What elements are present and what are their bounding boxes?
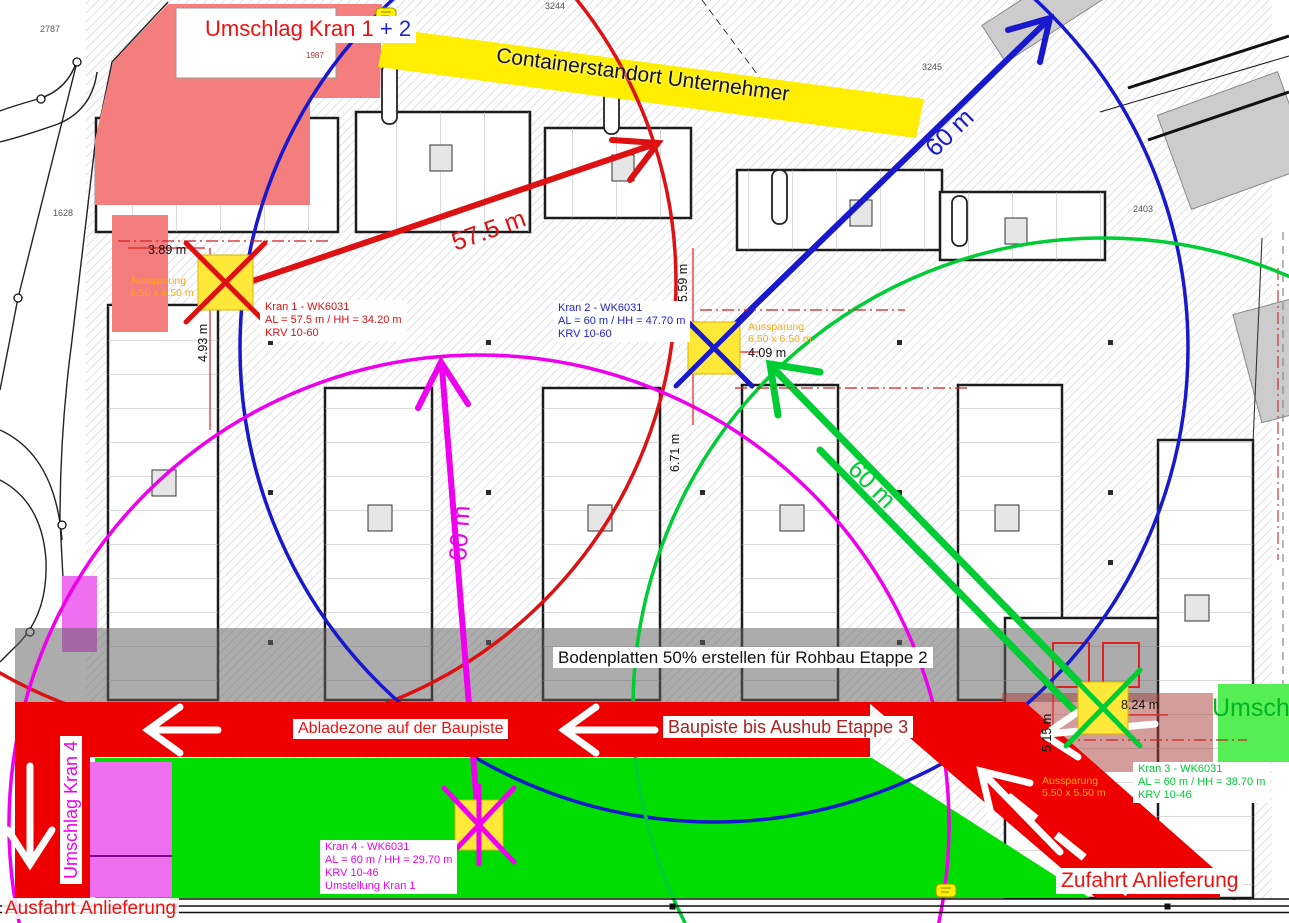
aussparung-1-title: Aussparung <box>130 276 194 288</box>
kran-2-krv: KRV 10-60 <box>558 328 685 341</box>
kran-4-note: Umstellung Kran 1 <box>325 880 452 893</box>
street-lines-bottom <box>0 899 1289 913</box>
kran-4-annotation: Kran 4 - WK6031 AL = 60 m / HH = 29.70 m… <box>320 840 457 894</box>
kran-4-krv: KRV 10-46 <box>325 867 452 880</box>
parcel-2787: 2787 <box>40 24 60 34</box>
aussparung-2-note: Aussparung 6.50 x 6.50 m <box>748 322 812 346</box>
dim-kran2-y1: 5.59 m <box>676 264 690 302</box>
parcel-1628: 1628 <box>53 208 73 218</box>
kran-1-krv: KRV 10-60 <box>265 327 402 340</box>
umschlag-kran-4-label: Umschlag Kran 4 <box>60 736 82 884</box>
parcel-3244: 3244 <box>545 1 565 11</box>
kran-2-specs: AL = 60 m / HH = 47.70 m <box>558 315 685 328</box>
ausfahrt-anlieferung-label: Ausfahrt Anlieferung <box>2 898 179 919</box>
zufahrt-anlieferung-label: Zufahrt Anlieferung <box>1056 868 1243 894</box>
umschlag-kran-1-2-label: Umschlag Kran 1 + 2 <box>200 16 416 43</box>
kran-1-name: Kran 1 - WK6031 <box>265 301 402 314</box>
zone-umschlag-strip-left <box>112 215 168 332</box>
kran-4-specs: AL = 60 m / HH = 29.70 m <box>325 854 452 867</box>
dim-kran2-x: 4.09 m <box>748 346 786 360</box>
dim-kran3-x: 8.24 m <box>1121 698 1159 712</box>
dim-kran2-y2: 6.71 m <box>668 434 682 472</box>
abladezone-label: Abladezone auf der Baupiste <box>293 719 508 739</box>
umschlag-kran-3-zone-label: Umschlag <box>1212 694 1289 722</box>
dim-kran3-y: 5.15 m <box>1040 714 1054 752</box>
kran-3-specs: AL = 60 m / HH = 38.70 m <box>1138 776 1265 789</box>
kran-4-name: Kran 4 - WK6031 <box>325 841 452 854</box>
kran-1-annotation: Kran 1 - WK6031 AL = 57.5 m / HH = 34.20… <box>260 300 407 341</box>
kran-3-annotation: Kran 3 - WK6031 AL = 60 m / HH = 38.70 m… <box>1133 762 1270 803</box>
umschlag-kran-1-2-part1: Umschlag Kran 1 <box>205 16 374 41</box>
umschlag-kran-1-2-part2: + 2 <box>374 16 411 41</box>
site-installation-plan: Umschlag Kran 1 + 2 Containerstandort Un… <box>0 0 1289 923</box>
dim-kran1-y: 4.93 m <box>196 324 210 362</box>
kran-2-name: Kran 2 - WK6031 <box>558 302 685 315</box>
aussparung-3-size: 5.50 x 5.50 m <box>1042 788 1106 800</box>
baupiste-label: Baupiste bis Aushub Etappe 3 <box>663 716 913 738</box>
kran-3-krv: KRV 10-46 <box>1138 789 1265 802</box>
kran-4-radius-label: 60 m <box>444 505 476 562</box>
aussparung-2-title: Aussparung <box>748 322 812 334</box>
kran-2-annotation: Kran 2 - WK6031 AL = 60 m / HH = 47.70 m… <box>553 301 690 342</box>
aussparung-1-size: 6.50 x 6.50 m <box>130 288 194 300</box>
parcel-2403: 2403 <box>1133 204 1153 214</box>
bodenplatten-label: Bodenplatten 50% erstellen für Rohbau Et… <box>553 647 933 668</box>
parcel-3245: 3245 <box>922 62 942 72</box>
signal-icon-bottom <box>936 884 956 897</box>
parcel-1987: 1987 <box>306 52 324 61</box>
kran-1-specs: AL = 57.5 m / HH = 34.20 m <box>265 314 402 327</box>
aussparung-1-note: Aussparung 6.50 x 6.50 m <box>130 276 194 300</box>
aussparung-3-title: Aussparung <box>1042 776 1106 788</box>
dim-kran1-x: 3.89 m <box>148 243 186 257</box>
aussparung-3-note: Aussparung 5.50 x 5.50 m <box>1042 776 1106 800</box>
aussparung-2-size: 6.50 x 6.50 m <box>748 334 812 346</box>
kran-3-name: Kran 3 - WK6031 <box>1138 763 1265 776</box>
